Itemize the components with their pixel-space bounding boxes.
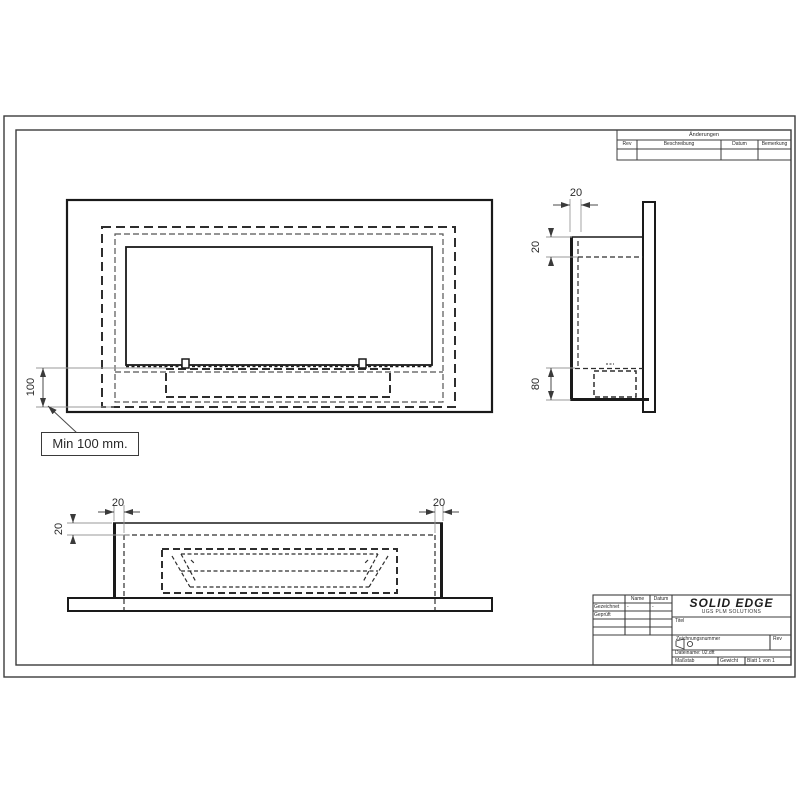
titleblock-weight-label: Gewicht: [720, 658, 744, 665]
min-distance-note: Min 100 mm.: [41, 432, 139, 456]
drawing-page: 100 20 20 80 20 20 20 Min 100 mm. Änderu…: [0, 0, 800, 800]
revision-col-beschreibung: Beschreibung: [637, 141, 721, 148]
solid-edge-logo: SOLID EDGE: [672, 597, 791, 609]
titleblock-file-text: Dateiname: 02.dft: [675, 650, 714, 657]
titleblock-header-name: Name: [625, 596, 650, 603]
titleblock-number-label: Zeichnungsnummer: [676, 636, 720, 643]
solid-edge-logo-sub: UGS PLM SOLUTIONS: [672, 609, 791, 615]
dim-bottom-edge: 20: [53, 509, 65, 549]
dim-bottom-right: 20: [419, 497, 459, 509]
titleblock-gezeichnet-name: -: [627, 604, 649, 611]
revision-col-datum: Datum: [721, 141, 758, 148]
titleblock-row-gezeichnet: Gezeichnet: [594, 604, 625, 611]
titleblock-gezeichnet-datum: -: [652, 604, 671, 611]
dim-bottom-left: 20: [98, 497, 138, 509]
bottom-view: [68, 523, 492, 611]
dim-side-top-offset: 20: [530, 227, 542, 267]
revision-col-rev: Rev: [617, 141, 637, 148]
dim-side-depth: 20: [556, 187, 596, 199]
titleblock-titel-label: Titel: [675, 618, 684, 625]
revision-col-bemerkung: Bemerkung: [758, 141, 791, 148]
dim-side-bottom: 80: [530, 364, 542, 404]
front-view: [67, 200, 492, 412]
burner-tray-outline: [172, 554, 388, 587]
titleblock-row-geprueft: Geprüft: [594, 612, 625, 619]
dim-front-height: 100: [25, 367, 37, 407]
titleblock-scale-label: Maßstab: [675, 658, 717, 665]
revision-table-title: Änderungen: [617, 131, 791, 139]
titleblock-sheet-label: Blatt 1 von 1: [747, 658, 790, 665]
titleblock-rev-label: Rev: [773, 636, 782, 643]
titleblock-header-datum: Datum: [650, 596, 672, 603]
side-view: [570, 202, 655, 412]
drawing-geometry: [0, 0, 800, 800]
bottom-dims: [67, 505, 459, 544]
